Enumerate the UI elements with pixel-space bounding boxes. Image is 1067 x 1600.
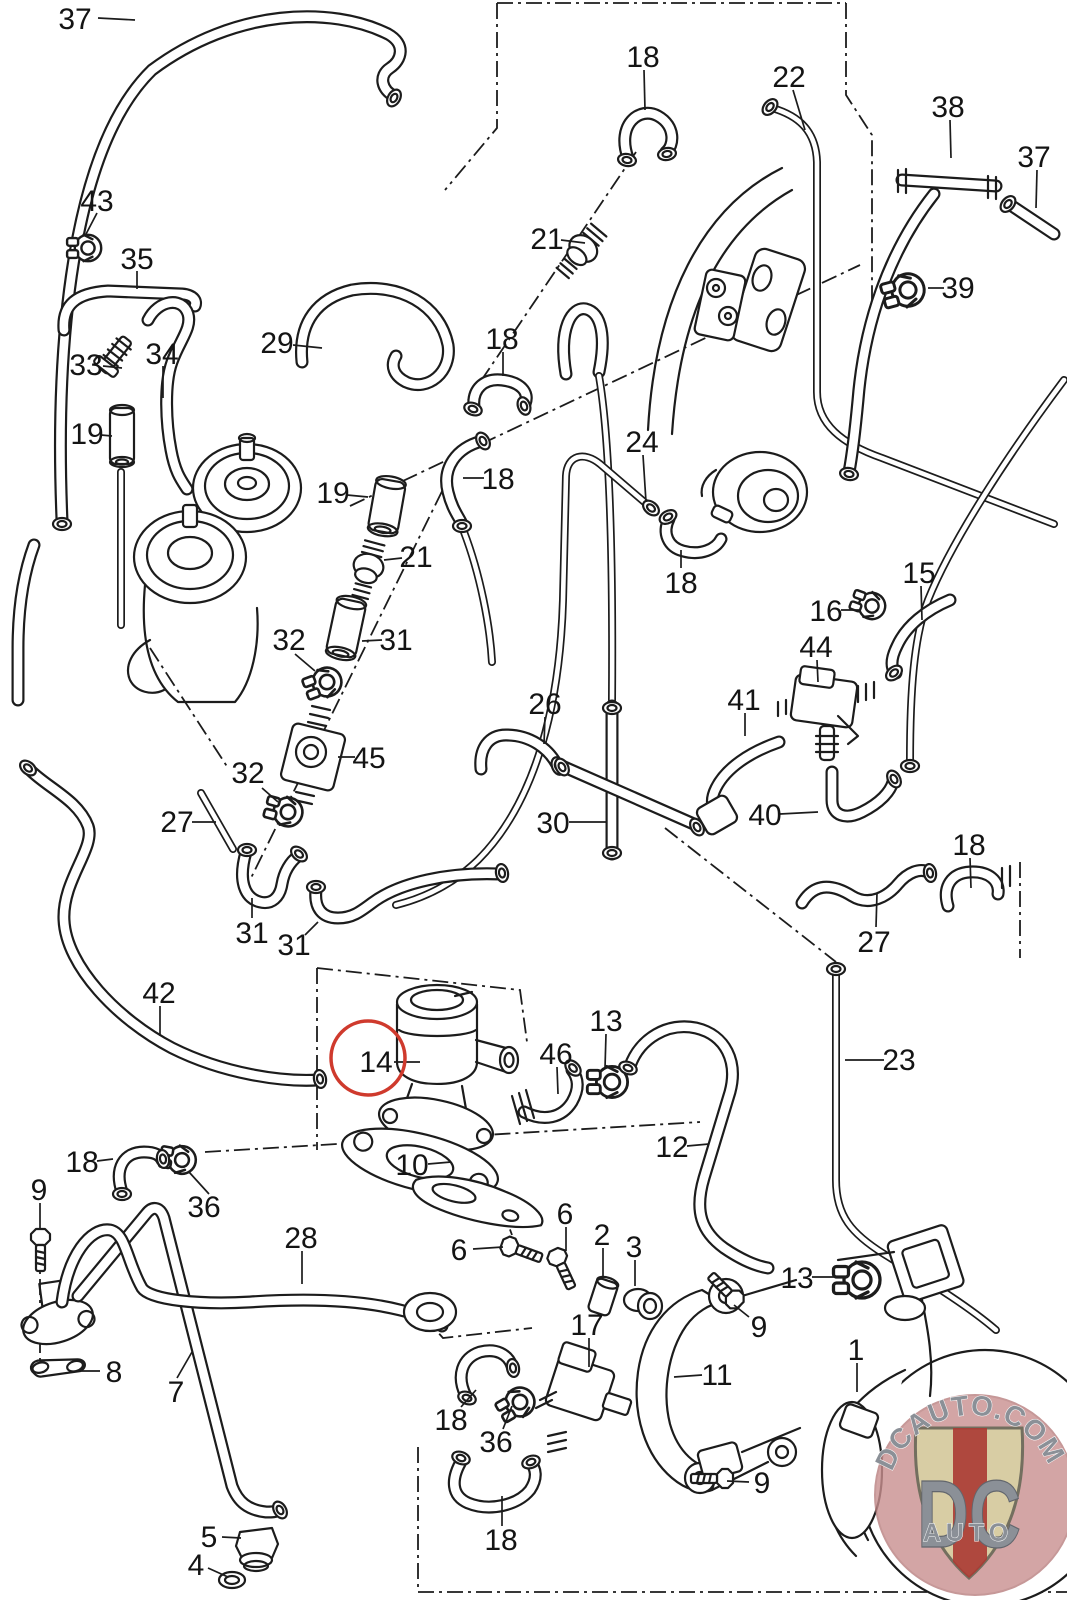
- diagram-page: DC AUTO DCAUTO.COM 374335333419291918222…: [0, 0, 1067, 1600]
- part-label-9: 9: [751, 1311, 768, 1344]
- part-label-22: 22: [772, 61, 805, 94]
- part-label-31: 31: [277, 929, 310, 962]
- part-label-15: 15: [902, 557, 935, 590]
- part-label-4: 4: [188, 1549, 205, 1582]
- leader-line-26: [544, 717, 545, 744]
- part-label-2: 2: [594, 1219, 611, 1252]
- grommet-3: [624, 1289, 662, 1319]
- connector-21-mid: [346, 539, 389, 601]
- part-label-21: 21: [399, 541, 432, 574]
- plug-5: [236, 1528, 278, 1571]
- clamp-16: [848, 586, 889, 622]
- part-label-41: 41: [727, 684, 760, 717]
- leader-line-9: [727, 1481, 749, 1482]
- part-label-18: 18: [626, 41, 659, 74]
- leader-line-15: [921, 586, 922, 620]
- clamp-32-a: [301, 664, 346, 704]
- part-label-42: 42: [142, 977, 175, 1010]
- engine-outline: [648, 168, 808, 532]
- leader-line-18: [970, 858, 971, 888]
- part-label-14: 14: [359, 1046, 392, 1079]
- part-label-13: 13: [589, 1005, 622, 1038]
- bolt-9-left: [31, 1229, 50, 1271]
- part-label-28: 28: [284, 1222, 317, 1255]
- clamp-32-b: [262, 792, 305, 829]
- solenoid-17: [536, 1341, 632, 1452]
- leader-line-18: [97, 1159, 113, 1161]
- part-label-18: 18: [952, 829, 985, 862]
- pipe-short: [464, 532, 492, 662]
- hose-31-elbow: [316, 874, 500, 918]
- part-label-36: 36: [187, 1191, 220, 1224]
- part-label-45: 45: [352, 742, 385, 775]
- part-label-31: 31: [379, 624, 412, 657]
- valve-45: [280, 706, 346, 804]
- part-label-35: 35: [120, 243, 153, 276]
- leader-line-27: [876, 893, 877, 927]
- part-label-31: 31: [235, 917, 268, 950]
- part-label-13: 13: [780, 1262, 813, 1295]
- leader-line-46: [557, 1067, 558, 1094]
- leader-line-9: [734, 1305, 749, 1317]
- part-label-40: 40: [748, 799, 781, 832]
- tee-38-leg: [849, 194, 934, 472]
- part-label-23: 23: [882, 1044, 915, 1077]
- part-label-32: 32: [272, 624, 305, 657]
- part-label-27: 27: [160, 806, 193, 839]
- part-label-18: 18: [485, 323, 518, 356]
- gasket-8: [30, 1350, 87, 1383]
- leader-line-38: [950, 120, 951, 158]
- hose-19-mid: [367, 474, 407, 538]
- watermark-dc-text: DC: [917, 1461, 1021, 1568]
- leader-line-37: [1036, 170, 1037, 208]
- filter-assembly: [128, 434, 301, 702]
- part-label-30: 30: [536, 807, 569, 840]
- part-label-38: 38: [931, 91, 964, 124]
- part-label-1: 1: [848, 1334, 865, 1367]
- leader-line-19: [347, 495, 368, 497]
- part-label-18: 18: [664, 567, 697, 600]
- part-label-3: 3: [626, 1231, 643, 1264]
- leader-line-24: [643, 455, 646, 502]
- hose-12: [630, 1027, 768, 1268]
- part-label-9: 9: [31, 1174, 48, 1207]
- part-label-26: 26: [528, 688, 561, 721]
- part-label-21: 21: [530, 223, 563, 256]
- hose-28: [62, 1230, 442, 1326]
- leader-line-37: [98, 18, 135, 20]
- part-label-17: 17: [570, 1309, 603, 1342]
- watermark-auto-text: AUTO: [923, 1519, 1013, 1547]
- valve-44: [778, 666, 874, 760]
- part-label-19: 19: [70, 418, 103, 451]
- part-label-39: 39: [941, 272, 974, 305]
- part-label-16: 16: [809, 595, 842, 628]
- hose-19-left: [110, 405, 134, 467]
- part-label-12: 12: [655, 1131, 688, 1164]
- leader-line-6: [473, 1247, 503, 1249]
- leader-line-18: [644, 70, 645, 110]
- part-label-18: 18: [481, 463, 514, 496]
- leader-line-7: [177, 1352, 192, 1378]
- hose-31-cyl: [325, 594, 368, 663]
- part-label-24: 24: [625, 426, 658, 459]
- leader-line-11: [674, 1375, 702, 1377]
- part-label-6: 6: [557, 1198, 574, 1231]
- part-label-46: 46: [539, 1038, 572, 1071]
- bolt-6-b: [499, 1235, 545, 1267]
- part-label-32: 32: [231, 757, 264, 790]
- part-label-8: 8: [106, 1356, 123, 1389]
- part-label-11: 11: [701, 1359, 732, 1392]
- part-label-7: 7: [168, 1376, 185, 1409]
- part-label-29: 29: [260, 327, 293, 360]
- pipe-22: [772, 108, 1054, 524]
- leader-line-5: [222, 1537, 241, 1538]
- part-label-43: 43: [80, 185, 113, 218]
- parts-diagram-canvas: DC AUTO DCAUTO.COM 374335333419291918222…: [0, 0, 1067, 1600]
- part-label-6: 6: [451, 1234, 468, 1267]
- part-label-18: 18: [484, 1524, 517, 1557]
- part-label-18: 18: [434, 1404, 467, 1437]
- leader-line-12: [687, 1144, 709, 1146]
- part-label-18: 18: [65, 1146, 98, 1179]
- part-label-33: 33: [69, 349, 102, 382]
- part-label-10: 10: [395, 1149, 428, 1182]
- clamp-36-b: [493, 1382, 540, 1426]
- part-label-44: 44: [799, 631, 832, 664]
- leader-line-40: [780, 812, 818, 814]
- part-label-34: 34: [145, 338, 178, 371]
- clamp-13-right: [834, 1262, 881, 1298]
- part-label-27: 27: [857, 926, 890, 959]
- part-label-19: 19: [316, 477, 349, 510]
- leader-line-13: [605, 1034, 606, 1068]
- part-label-36: 36: [479, 1426, 512, 1459]
- part-label-9: 9: [754, 1467, 771, 1500]
- bolt-6-a: [545, 1246, 580, 1292]
- part-label-37: 37: [58, 3, 91, 36]
- hose-28-end: [404, 1293, 456, 1331]
- part-label-37: 37: [1017, 141, 1050, 174]
